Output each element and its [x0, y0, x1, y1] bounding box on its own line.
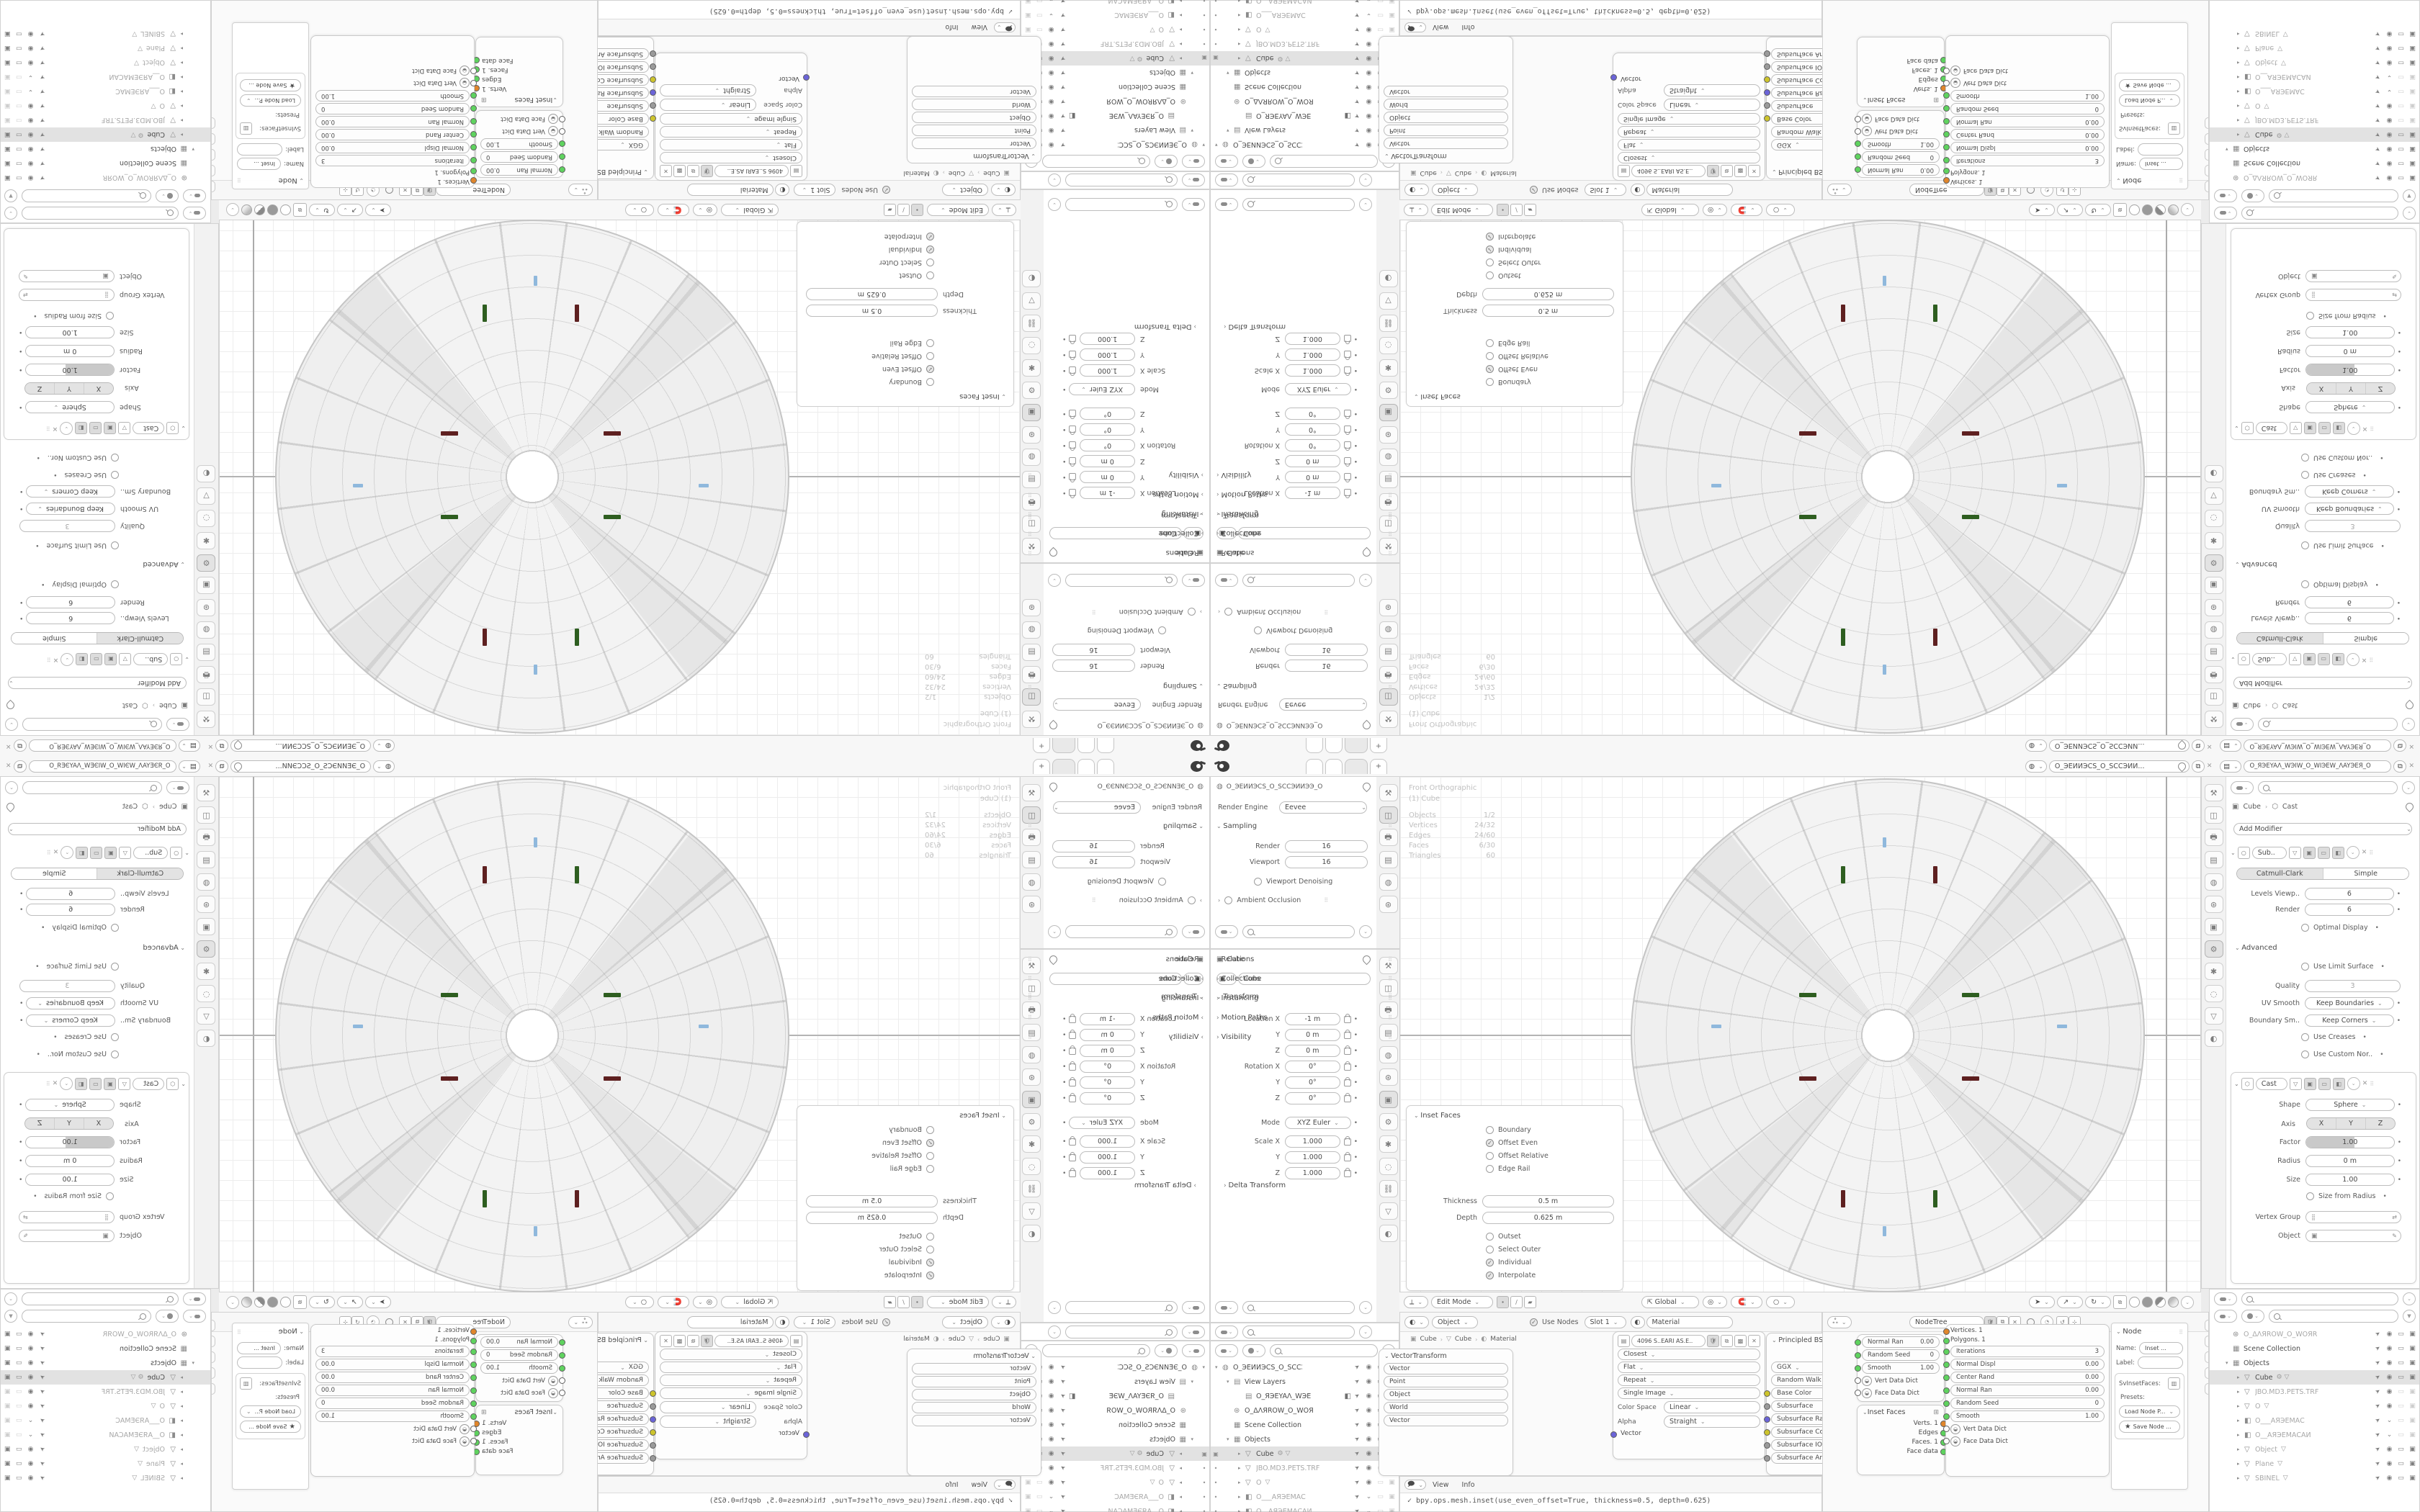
- add-modifier-button[interactable]: Add Modifier: [2233, 823, 2412, 835]
- viewport-disable-icon[interactable]: [15, 145, 23, 153]
- orientation-select[interactable]: ⇱ Global: [721, 1296, 779, 1308]
- sv-field[interactable]: Normal Ran0.00: [480, 164, 558, 176]
- proportional-edit-toggle[interactable]: ○: [625, 1296, 654, 1308]
- display-mode-dropdown[interactable]: [2214, 189, 2237, 202]
- input-socket[interactable]: [1764, 76, 1770, 83]
- outliner-row[interactable]: ▾ ▦ Objects: [1021, 66, 1209, 80]
- selectable-icon[interactable]: [2374, 131, 2382, 138]
- sv-output[interactable]: Face data: [1863, 1448, 1938, 1455]
- workspace-tab[interactable]: [1306, 759, 1323, 774]
- viewlayer-tab-icon[interactable]: ▤: [1379, 851, 1398, 868]
- editor-type-icon[interactable]: ◐: [1404, 1316, 1429, 1328]
- scene-copy-button[interactable]: ⧉: [215, 760, 228, 773]
- animate-dot[interactable]: •: [1062, 351, 1066, 359]
- display-mode-dropdown[interactable]: [1182, 155, 1205, 168]
- info-menu-view[interactable]: View: [964, 1481, 994, 1489]
- image-option-select[interactable]: Repeat: [660, 126, 802, 138]
- viewlayer-copy-button[interactable]: ⧉: [2393, 740, 2406, 752]
- edit-mode-display-icon[interactable]: ▽: [118, 423, 130, 435]
- select-tool-dropdown[interactable]: ➤: [365, 204, 391, 216]
- use-limit-surface-check[interactable]: Use Limit Surface•: [2301, 963, 2385, 971]
- lock-icon[interactable]: [1344, 1079, 1351, 1086]
- expand-icon[interactable]: ▸: [1238, 1494, 1245, 1500]
- selectable-icon[interactable]: [2374, 1431, 2382, 1439]
- output-tab-icon[interactable]: 🖶: [1023, 829, 1041, 846]
- vertex-select-icon[interactable]: ∙: [1497, 204, 1509, 216]
- sv-node-a[interactable]: Normal Ran0.00Random Seed0Smooth1.00 ◒Ve…: [1857, 110, 1945, 178]
- outliner-row[interactable]: ▸ ▽ O ▽: [1, 99, 210, 113]
- viewport-denoising-check[interactable]: Viewport Denoising: [1254, 626, 1332, 634]
- sv-field[interactable]: Normal Ran0.00: [1862, 164, 1940, 176]
- animate-dot[interactable]: •: [1354, 351, 1358, 359]
- realtime-display-icon[interactable]: ▣: [104, 847, 117, 859]
- viewport-disable-icon[interactable]: [2397, 30, 2405, 37]
- outliner-row[interactable]: ⊛ O_ΔΛЯROW_O_WOЯI: [1211, 1403, 1399, 1418]
- advanced-section[interactable]: Advanced: [143, 944, 185, 952]
- modifier-tab-icon[interactable]: ⚙: [197, 940, 216, 958]
- sv-field[interactable]: Iterations3: [315, 1346, 470, 1357]
- selectable-icon[interactable]: [1353, 1508, 1361, 1512]
- sidebar-tab[interactable]: [212, 1351, 215, 1363]
- colorspace-select[interactable]: Linear: [1664, 1401, 1760, 1413]
- workspace-tab[interactable]: [1097, 759, 1114, 774]
- hide-icon[interactable]: [2385, 174, 2393, 181]
- expand-icon[interactable]: ▸: [2237, 74, 2244, 80]
- modifier-extras-chevron[interactable]: ⌄: [2347, 422, 2360, 435]
- inset-checkbox[interactable]: Edge Rail: [1486, 339, 1549, 347]
- snap-toggle[interactable]: 🧲: [1731, 1296, 1762, 1308]
- pin-icon[interactable]: [2177, 760, 2188, 772]
- fake-user-shield-icon[interactable]: 🛡: [701, 165, 713, 177]
- selectable-icon[interactable]: [1353, 127, 1361, 134]
- drag-grip[interactable]: ⠿: [2369, 657, 2373, 663]
- sv-field[interactable]: Smooth1.00: [480, 138, 558, 150]
- animate-dot[interactable]: •: [1062, 442, 1066, 449]
- options-chevron[interactable]: ⌄: [1359, 174, 1372, 186]
- collapsed-section[interactable]: Collections: [1160, 529, 1204, 537]
- inset-panel-title[interactable]: Inset Faces: [959, 392, 1006, 400]
- sampling-section[interactable]: Sampling: [1216, 682, 1257, 690]
- vertex-group-field[interactable]: ⣿⇄: [19, 289, 115, 301]
- socket[interactable]: [559, 1377, 565, 1384]
- viewport-disable-icon[interactable]: [1036, 26, 1044, 33]
- viewlayer-copy-button[interactable]: ⧉: [14, 740, 27, 752]
- render-disable-icon[interactable]: [1388, 26, 1396, 33]
- inset-checkbox[interactable]: Offset Even: [1486, 365, 1549, 373]
- selectable-icon[interactable]: [1353, 26, 1361, 33]
- outliner-row[interactable]: ▾ ▦ Objects: [1, 142, 210, 156]
- hide-icon[interactable]: [2385, 73, 2393, 81]
- options-chevron[interactable]: ⌄: [5, 781, 18, 794]
- axis-y-button[interactable]: Y: [2336, 383, 2366, 394]
- search-input[interactable]: [1242, 174, 1355, 186]
- axis-z-button[interactable]: Z: [2366, 383, 2395, 394]
- expand-icon[interactable]: ▸: [176, 103, 183, 109]
- selectable-icon[interactable]: [1353, 69, 1361, 76]
- unlink-icon[interactable]: ✕: [1748, 165, 1760, 177]
- expand-icon[interactable]: ▸: [1238, 1465, 1245, 1471]
- hide-icon[interactable]: [1047, 1493, 1055, 1500]
- viewlayer-tab-icon[interactable]: ▤: [1023, 851, 1041, 868]
- expand-icon[interactable]: ▾: [1186, 70, 1193, 76]
- socket[interactable]: [1943, 1426, 1950, 1432]
- expand-icon[interactable]: ▸: [176, 1418, 183, 1423]
- image-option-select[interactable]: Closest: [1618, 1349, 1760, 1360]
- data-tab-icon[interactable]: ▽: [1023, 292, 1041, 310]
- render-tab-icon[interactable]: ◫: [1023, 688, 1041, 706]
- modifier-delete-icon[interactable]: ✕: [53, 849, 59, 856]
- selectable-icon[interactable]: [1059, 0, 1067, 4]
- use-nodes-check[interactable]: Use Nodes: [1530, 1318, 1579, 1326]
- shader-type-select[interactable]: Object: [942, 184, 988, 197]
- socket[interactable]: [470, 144, 477, 150]
- output-tab-icon[interactable]: 🖶: [1023, 666, 1041, 683]
- node-panel-title[interactable]: Node: [2116, 1328, 2141, 1336]
- hide-icon[interactable]: [2385, 1374, 2393, 1381]
- workspace-tab-active[interactable]: [1052, 739, 1075, 754]
- filter-toggle[interactable]: [2214, 207, 2237, 220]
- expand-icon[interactable]: ▾: [1186, 1436, 1193, 1442]
- hide-icon[interactable]: [1365, 1421, 1373, 1428]
- selectable-icon[interactable]: [1353, 1493, 1361, 1500]
- selectable-icon[interactable]: [1059, 141, 1067, 148]
- sidebar-tab[interactable]: [212, 1320, 215, 1331]
- subdiv-name-field[interactable]: Sub..: [133, 847, 168, 859]
- world-tab-icon[interactable]: ⊛: [1023, 896, 1041, 913]
- particles-tab-icon[interactable]: ✱: [2205, 963, 2223, 980]
- lock-icon[interactable]: [1069, 1138, 1076, 1146]
- render-disable-icon[interactable]: [4, 117, 12, 124]
- input-socket[interactable]: [1764, 1403, 1770, 1410]
- render-display-icon[interactable]: ◧: [76, 847, 88, 859]
- search-input[interactable]: [22, 781, 162, 794]
- outliner-row[interactable]: ▸ ◧ O__АЯЭЕМАCАИ: [1, 70, 210, 84]
- viewport-disable-icon[interactable]: [2397, 1460, 2405, 1467]
- edit-mode-display-icon[interactable]: ▽: [118, 1078, 130, 1090]
- selectable-icon[interactable]: [1059, 112, 1067, 120]
- expand-icon[interactable]: ▸: [176, 31, 183, 37]
- outliner-row[interactable]: ▸ ◧ O___АЯЭЕМАC: [2210, 1413, 2419, 1428]
- world-tab-icon[interactable]: ⊛: [2205, 896, 2223, 913]
- sv-field[interactable]: Random Seed0: [480, 1349, 558, 1361]
- expand-icon[interactable]: ▸: [2237, 103, 2244, 109]
- viewport-disable-icon[interactable]: [15, 88, 23, 95]
- vt-option[interactable]: Point: [1384, 125, 1508, 136]
- outliner-row[interactable]: ▸ ▽ JBO.MD3.PETS.TRF: [1, 1385, 210, 1399]
- sidebar-tab[interactable]: [2205, 1320, 2208, 1331]
- expand-icon[interactable]: ▸: [176, 45, 183, 51]
- animate-dot[interactable]: •: [1354, 442, 1358, 449]
- selectable-icon[interactable]: [2374, 88, 2382, 95]
- render-disable-icon[interactable]: [2408, 45, 2416, 52]
- filter-dropdown[interactable]: [1242, 1344, 1265, 1357]
- output-tab-icon[interactable]: 🖶: [1379, 666, 1398, 683]
- optimal-display-check[interactable]: Optimal Display•: [2301, 580, 2379, 588]
- editor-type-icon[interactable]: ஃ: [568, 1316, 593, 1328]
- filter-toggle[interactable]: [1215, 198, 1238, 211]
- selectable-icon[interactable]: [2374, 145, 2382, 153]
- viewlayer-close-icon[interactable]: ✕: [2408, 742, 2414, 750]
- hide-icon[interactable]: [1365, 84, 1373, 91]
- selectable-icon[interactable]: [38, 117, 46, 124]
- collapsed-section[interactable]: Visibility: [1216, 471, 1251, 479]
- collapsed-section[interactable]: Collections: [1216, 975, 1260, 983]
- viewport-disable-icon[interactable]: [15, 1374, 23, 1381]
- options-chevron[interactable]: ⌄: [1048, 925, 1061, 938]
- outliner-row[interactable]: ▾ ▤ View Layers: [1021, 1374, 1209, 1389]
- hide-icon[interactable]: [27, 1431, 35, 1439]
- save-preset-button[interactable]: ★ Save Node ...: [240, 79, 301, 91]
- sidebar-tab[interactable]: [2205, 165, 2208, 176]
- transform-field[interactable]: 0°: [1285, 423, 1340, 436]
- sidebar-tab[interactable]: [212, 1367, 215, 1379]
- sidebar-tab[interactable]: [212, 133, 215, 145]
- add-workspace-button[interactable]: +: [1370, 759, 1387, 774]
- outliner-row[interactable]: ▸ ▽ Cube ⚙ ▽: [2210, 127, 2419, 142]
- expand-icon[interactable]: ▸: [1175, 1451, 1182, 1457]
- slot-select[interactable]: Slot 1: [794, 184, 835, 197]
- drag-grip[interactable]: ⠿: [1027, 822, 1032, 829]
- render-disable-icon[interactable]: [1024, 1479, 1032, 1486]
- value-field[interactable]: 16: [1285, 660, 1368, 672]
- hide-icon[interactable]: [1365, 1378, 1373, 1385]
- scene-icon[interactable]: ◍: [2025, 740, 2047, 752]
- sv-output[interactable]: Verts. 1: [1863, 1420, 1938, 1427]
- collapsed-section[interactable]: Motion Paths: [1216, 490, 1268, 498]
- sv-inset-faces-node[interactable]: Inset Faces⊞ Verts. 1EdgesFaces. 1Face d…: [1857, 37, 1945, 107]
- sv-output[interactable]: Edges: [1863, 76, 1938, 83]
- render-display-icon[interactable]: ◧: [75, 1078, 87, 1090]
- hide-icon[interactable]: [1365, 141, 1373, 148]
- modifier-tab-icon[interactable]: ⚙: [2205, 940, 2223, 958]
- factor-slider[interactable]: 1.00: [2305, 1136, 2395, 1148]
- outliner-row[interactable]: ▾ ◍ O_ЭЕИИЭCS_O_SCCЭИI: [1021, 1360, 1209, 1374]
- hide-icon[interactable]: [2385, 102, 2393, 109]
- socket[interactable]: [470, 1374, 477, 1381]
- outliner-search-input[interactable]: [22, 189, 151, 202]
- lock-icon[interactable]: [1344, 1138, 1351, 1146]
- shading-wireframe-icon[interactable]: [2129, 204, 2140, 215]
- selectable-icon[interactable]: [38, 1403, 46, 1410]
- shading-chevron[interactable]: ⌄: [226, 1296, 239, 1309]
- pin-icon[interactable]: [5, 801, 17, 813]
- sv-node-a[interactable]: Normal Ran0.00Random Seed0Smooth1.00 ◒Ve…: [475, 1334, 563, 1402]
- ambient-occlusion-section[interactable]: ›Ambient Occlusion⠿: [1218, 896, 1329, 904]
- vt-option[interactable]: Object: [912, 1389, 1036, 1400]
- subdiv-level-field[interactable]: 6: [2305, 888, 2394, 900]
- modifier-delete-icon[interactable]: ✕: [2362, 425, 2368, 432]
- render-tab-icon[interactable]: ◫: [2205, 806, 2223, 824]
- axis-z-button[interactable]: Z: [2366, 1118, 2395, 1129]
- selectable-icon[interactable]: [2374, 45, 2382, 52]
- socket[interactable]: [1943, 105, 1950, 112]
- outliner-row[interactable]: ▾ ◍ O_ЭЕИИЭCS_O_SCCЭИI: [1211, 1360, 1399, 1374]
- shading-rendered-icon[interactable]: [241, 204, 252, 215]
- search-input[interactable]: [1065, 198, 1178, 211]
- viewlayer-copy-button[interactable]: ⧉: [14, 760, 27, 773]
- vt-option[interactable]: Point: [1384, 1376, 1508, 1387]
- pivot-select[interactable]: ◎: [693, 204, 717, 216]
- hide-icon[interactable]: [27, 131, 35, 138]
- viewport-denoising-check[interactable]: Viewport Denoising: [1254, 878, 1332, 886]
- sv-output[interactable]: Face data: [1863, 57, 1938, 64]
- rotation-mode-select[interactable]: XYZ Euler: [1069, 1117, 1135, 1129]
- hide-icon[interactable]: [1047, 141, 1055, 148]
- expand-icon[interactable]: ▸: [176, 74, 183, 80]
- material-tab-icon[interactable]: ◐: [197, 1030, 216, 1047]
- world-tab-icon[interactable]: ⊛: [1023, 599, 1041, 616]
- drag-grip[interactable]: ⠿: [1388, 530, 1393, 536]
- animate-dot[interactable]: •: [1062, 410, 1066, 418]
- filter-dropdown[interactable]: [1155, 1344, 1178, 1357]
- filter-toggle[interactable]: [183, 1292, 206, 1305]
- editor-type-icon[interactable]: 🗩: [1404, 22, 1426, 32]
- use-limit-surface-check[interactable]: Use Limit Surface•: [35, 963, 119, 971]
- socket[interactable]: [1943, 177, 1950, 184]
- hide-icon[interactable]: [1047, 0, 1055, 4]
- render-disable-icon[interactable]: [4, 131, 12, 138]
- scene-tab-icon[interactable]: ◍: [1379, 449, 1398, 466]
- transform-field[interactable]: 0°: [1080, 439, 1135, 451]
- socket[interactable]: [559, 153, 565, 160]
- inset-panel-title[interactable]: Inset Faces: [959, 1112, 1006, 1120]
- vt-option[interactable]: Object: [912, 112, 1036, 123]
- hide-icon[interactable]: [27, 160, 35, 167]
- expand-icon[interactable]: ▸: [176, 1461, 183, 1467]
- render-disable-icon[interactable]: [1024, 26, 1032, 33]
- drag-grip[interactable]: ⠿: [2370, 1081, 2374, 1087]
- lock-icon[interactable]: [1069, 1063, 1076, 1071]
- use-creases-check[interactable]: Use Creases•: [53, 471, 119, 479]
- scale-field[interactable]: 1.000: [1080, 1135, 1135, 1148]
- input-socket[interactable]: [650, 102, 656, 109]
- vertex-group-field[interactable]: ⣿⇄: [2305, 1211, 2401, 1223]
- object-tab-icon[interactable]: ▣: [197, 918, 216, 935]
- scene-tab-icon[interactable]: ◍: [1023, 1046, 1041, 1063]
- sidebar-tab[interactable]: [2205, 1336, 2208, 1347]
- outliner-row[interactable]: • ▸ ▽ JBO.MD3.PETS.TRF: [1021, 37, 1209, 51]
- selectable-icon[interactable]: [1059, 84, 1067, 91]
- tool-tab-icon[interactable]: ⚒: [2205, 711, 2223, 728]
- hide-icon[interactable]: [27, 174, 35, 181]
- axis-z-button[interactable]: Z: [25, 383, 54, 394]
- outliner-row[interactable]: ▾ ▦ Objects: [1, 1356, 210, 1370]
- lock-icon[interactable]: [1344, 1063, 1351, 1071]
- advanced-section[interactable]: Advanced: [2235, 944, 2277, 952]
- fake-user-shield-icon[interactable]: 🛡: [1707, 165, 1719, 177]
- sampling-section[interactable]: Sampling: [1216, 822, 1257, 830]
- outliner-row[interactable]: ▣ ▸ ▽ Cube ⚙ ▽: [1211, 1446, 1399, 1461]
- outliner-row[interactable]: ⊛ O_ΔΛЯROW_O_WOЯR: [2210, 1327, 2419, 1341]
- scene-unlink-icon[interactable]: ✕: [2207, 762, 2213, 770]
- sv-field[interactable]: Normal Displ0.00: [315, 142, 470, 153]
- sv-output[interactable]: Faces. 1: [1863, 66, 1938, 73]
- node-name-field[interactable]: Inset ...: [237, 158, 281, 170]
- catmull-clark-button[interactable]: Catmull-Clark: [2237, 633, 2323, 644]
- viewport-disable-icon[interactable]: [2397, 1331, 2405, 1338]
- collapsed-section[interactable]: Instancing: [1216, 994, 1258, 1002]
- editor-type-icon[interactable]: ⟂: [992, 1296, 1016, 1308]
- shading-wireframe-icon[interactable]: [280, 1297, 291, 1308]
- vt-option[interactable]: World: [912, 1402, 1036, 1413]
- hide-icon[interactable]: [2385, 1331, 2393, 1338]
- hide-icon[interactable]: [2385, 1417, 2393, 1424]
- outliner-row[interactable]: ▸ ▽ O ▽: [1, 1399, 210, 1413]
- socket[interactable]: [1943, 1387, 1950, 1394]
- selectable-icon[interactable]: [38, 59, 46, 66]
- sv-field[interactable]: Smooth1.00: [1862, 138, 1940, 150]
- expand-icon[interactable]: ▸: [1175, 1508, 1182, 1512]
- workspace-tab[interactable]: [1077, 759, 1095, 774]
- filter-dropdown[interactable]: [1155, 155, 1178, 168]
- expand-icon[interactable]: ▸: [1238, 1508, 1245, 1512]
- value-field[interactable]: 16: [1052, 660, 1135, 672]
- options-chevron[interactable]: ⌄: [2403, 1292, 2416, 1305]
- use-nodes-check[interactable]: Use Nodes: [841, 1318, 890, 1326]
- socket[interactable]: [1855, 116, 1861, 122]
- drag-grip[interactable]: ⠿: [1388, 510, 1393, 517]
- ambient-occlusion-section[interactable]: ›Ambient Occlusion⠿: [1218, 608, 1329, 616]
- inset-value-field[interactable]: 0.5 m: [806, 1195, 938, 1207]
- image-option-select[interactable]: Repeat: [660, 1374, 802, 1386]
- expand-icon[interactable]: ▾: [187, 1360, 194, 1366]
- rotation-mode-select[interactable]: XYZ Euler: [1069, 383, 1135, 395]
- render-disable-icon[interactable]: [4, 1388, 12, 1395]
- mode-select[interactable]: Edit Mode: [1431, 204, 1493, 216]
- unlink-icon[interactable]: ✕: [660, 1335, 672, 1347]
- selectable-icon[interactable]: [38, 131, 46, 138]
- pin-icon[interactable]: [1048, 781, 1059, 793]
- modifier-extras-chevron[interactable]: ⌄: [60, 653, 73, 666]
- expand-icon[interactable]: ▸: [2237, 1461, 2244, 1467]
- render-disable-icon[interactable]: [2408, 174, 2416, 181]
- render-disable-icon[interactable]: [2408, 1388, 2416, 1395]
- modifier-extras-chevron[interactable]: ⌄: [2347, 653, 2359, 666]
- search-input[interactable]: [1242, 574, 1355, 587]
- shading-material-icon[interactable]: [254, 204, 265, 215]
- vertex-select-icon[interactable]: ∙: [1497, 1296, 1509, 1308]
- lock-icon[interactable]: [1344, 351, 1351, 359]
- drag-grip[interactable]: ⠿: [1388, 549, 1393, 556]
- shape-select[interactable]: Sphere: [25, 401, 115, 413]
- collapsed-section[interactable]: Visibility: [1169, 471, 1204, 479]
- expand-icon[interactable]: ▾: [187, 146, 194, 152]
- lock-icon[interactable]: [1069, 336, 1076, 343]
- render-disable-icon[interactable]: [4, 73, 12, 81]
- sv-field[interactable]: Normal Ran0.00: [1862, 1336, 1940, 1348]
- simple-button[interactable]: Simple: [12, 633, 97, 644]
- filter-toggle[interactable]: [1182, 1301, 1205, 1314]
- axis-x-button[interactable]: X: [84, 1118, 113, 1129]
- expand-icon[interactable]: ▸: [176, 1432, 183, 1438]
- inset-checkbox[interactable]: Individual: [1486, 1259, 1541, 1266]
- search-input[interactable]: [1065, 174, 1178, 186]
- inset-value-field[interactable]: 0.625 m: [806, 1212, 938, 1224]
- workspace-tab-active[interactable]: [1345, 739, 1368, 754]
- socket[interactable]: [470, 1426, 477, 1432]
- render-disable-icon[interactable]: [2408, 1374, 2416, 1381]
- input-socket[interactable]: [650, 1442, 656, 1449]
- output-tab-icon[interactable]: 🖶: [197, 829, 216, 846]
- inset-checkbox[interactable]: Offset Relative: [1486, 1152, 1549, 1160]
- hide-icon[interactable]: [2385, 1388, 2393, 1395]
- vertex-group-field[interactable]: ⣿⇄: [19, 1211, 115, 1223]
- modifier-tab-icon[interactable]: ⚙: [2205, 554, 2223, 572]
- outliner-search-input[interactable]: [1270, 155, 1378, 168]
- viewport-disable-icon[interactable]: [2397, 73, 2405, 81]
- viewport-disable-icon[interactable]: [2397, 1431, 2405, 1439]
- catmull-clark-button[interactable]: Catmull-Clark: [2237, 868, 2323, 879]
